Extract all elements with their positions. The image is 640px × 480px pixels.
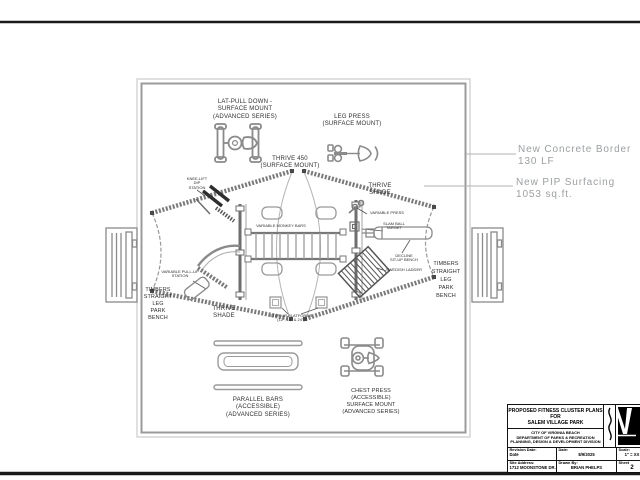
field-revision-date: Revision Date: Date	[508, 448, 557, 461]
drawn-by-value: BRIAN PHELPS	[557, 466, 616, 471]
label-bench-right: TIMBERS STRAIGHT LEG PARK BENCH	[432, 260, 461, 300]
revision-date-value: Date	[508, 453, 556, 458]
label-thrive-shade-ne: THRIVE SHADE	[368, 183, 391, 198]
annotation-concrete-border: New Concrete Border 130 LF	[518, 144, 631, 167]
label-leg-press: LEG PRESS (SURFACE MOUNT)	[323, 114, 382, 129]
park-bench-left-icon	[106, 228, 137, 302]
field-site-address: Site Address: 1712 MOONSTONE DR.	[508, 461, 557, 474]
station-benches	[262, 207, 336, 275]
leg-press-icon	[328, 145, 378, 161]
label-thrive-450: THRIVE 450 (SURFACE MOUNT)	[261, 156, 320, 171]
plan-sheet: LAT-PULL DOWN - SURFACE MOUNT (ADVANCED …	[0, 0, 640, 480]
label-chest-press: CHEST PRESS (ACCESSIBLE) SURFACE MOUNT (…	[342, 388, 399, 416]
label-knee-lift-dip: KNEE-LIFT DIP STATION	[187, 177, 207, 190]
step-up-platforms-icon	[270, 297, 327, 314]
annotation-pip-surfacing: New PIP Surfacing 1053 sq.ft.	[516, 177, 615, 200]
label-bench-left: TIMBERS STRAIGHT LEG PARK BENCH	[144, 287, 173, 322]
field-drawn-by: Drawn By: BRIAN PHELPS	[557, 461, 617, 474]
title-block: PROPOSED FITNESS CLUSTER PLANS FOR SALEM…	[507, 404, 640, 473]
park-bench-right-icon	[472, 228, 503, 302]
title-line3: SALEM VILLAGE PARK	[508, 420, 603, 426]
label-variable-press: VARIABLE PRESS	[370, 211, 404, 215]
situp-bench-icon	[362, 227, 432, 253]
site-address-value: 1712 MOONSTONE DR.	[508, 466, 556, 471]
label-swedish-ladder: SWEDISH LADDER	[386, 268, 422, 272]
label-step-up-platforms: STEP-UP PLATFORMS (12", 18" & 24")	[270, 314, 313, 323]
title-block-agency: CITY OF VIRGINIA BEACH DEPARTMENT OF PAR…	[508, 429, 604, 448]
label-thrive-shade-sw: THRIVE SHADE	[212, 306, 235, 321]
field-sheet: Sheet 2	[617, 461, 640, 474]
swedish-ladder-icon	[338, 247, 389, 298]
vb-logo-cell	[616, 405, 640, 448]
label-slam-ball-target: SLAM BALL TARGET	[383, 222, 405, 231]
title-block-title: PROPOSED FITNESS CLUSTER PLANS FOR SALEM…	[508, 405, 604, 429]
scale-value: 1" = XX	[617, 453, 640, 458]
support-posts	[236, 200, 362, 300]
field-date: Date: 8/9/2025	[557, 448, 617, 461]
squiggle-divider	[604, 405, 616, 448]
label-variable-pullup: VARIABLE PULL-UP STATION	[161, 270, 198, 279]
field-scale: Scale: 1" = XX	[617, 448, 640, 461]
parallel-bars-icon	[214, 341, 302, 390]
monkey-bars-icon	[245, 229, 346, 262]
label-variable-monkey-bars: VARIABLE MONKEY BARS	[256, 224, 306, 228]
virginia-beach-logo-icon	[618, 407, 640, 445]
thrive-shade-structure	[150, 169, 436, 321]
date-value: 8/9/2025	[557, 453, 616, 458]
label-lat-pull-down: LAT-PULL DOWN - SURFACE MOUNT (ADVANCED …	[213, 99, 277, 121]
label-decline-situp-bench: DECLINE SIT-UP BENCH	[390, 254, 418, 263]
wave-divider-icon	[604, 405, 616, 445]
label-parallel-bars: PARALLEL BARS (ACCESSIBLE) (ADVANCED SER…	[226, 397, 290, 419]
lat-pull-down-icon	[215, 124, 261, 162]
sheet-value: 2	[617, 466, 640, 471]
chest-press-icon	[341, 338, 383, 376]
